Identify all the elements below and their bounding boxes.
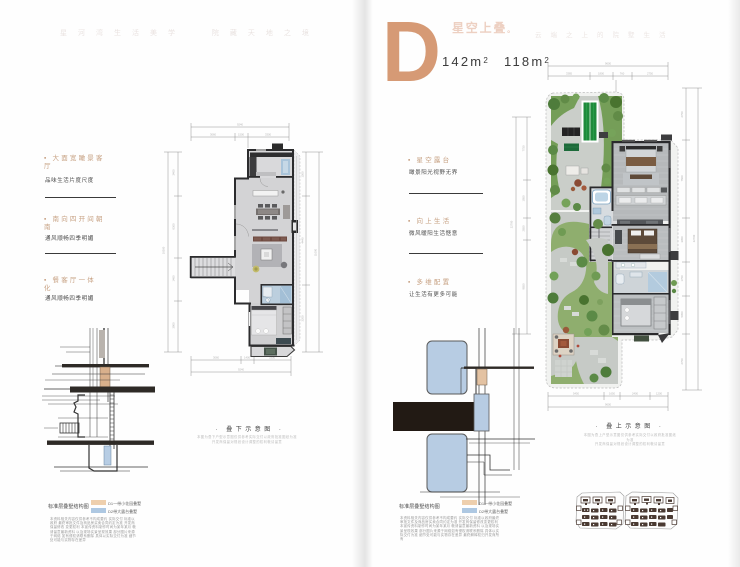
svg-text:2750: 2750 xyxy=(680,358,684,364)
svg-text:5450: 5450 xyxy=(573,392,579,396)
svg-text:1750: 1750 xyxy=(680,275,684,281)
svg-text:9240: 9240 xyxy=(238,368,244,372)
svg-text:2750: 2750 xyxy=(647,72,653,76)
svg-text:1200: 1200 xyxy=(656,392,662,396)
svg-text:9600: 9600 xyxy=(605,403,611,407)
svg-text:1500: 1500 xyxy=(301,171,305,177)
svg-text:1400: 1400 xyxy=(244,356,250,360)
svg-text:3900: 3900 xyxy=(172,322,176,328)
svg-text:3060: 3060 xyxy=(210,133,216,137)
svg-text:6300: 6300 xyxy=(172,223,176,229)
svg-text:11000: 11000 xyxy=(314,248,318,256)
svg-text:9240: 9240 xyxy=(237,123,243,127)
svg-text:3050: 3050 xyxy=(680,236,684,242)
svg-text:3200: 3200 xyxy=(301,315,305,321)
svg-text:1650: 1650 xyxy=(609,392,615,396)
svg-text:7500: 7500 xyxy=(680,175,684,181)
svg-text:9600: 9600 xyxy=(605,62,611,66)
svg-text:1800: 1800 xyxy=(598,72,604,76)
svg-text:3400: 3400 xyxy=(172,169,176,175)
svg-text:1950: 1950 xyxy=(522,195,526,201)
svg-text:760: 760 xyxy=(620,72,625,76)
svg-text:22700: 22700 xyxy=(510,220,514,228)
svg-text:2400: 2400 xyxy=(632,392,638,396)
svg-text:1460: 1460 xyxy=(172,275,176,281)
svg-text:1500: 1500 xyxy=(238,133,244,137)
svg-text:5050: 5050 xyxy=(680,311,684,317)
svg-text:7750: 7750 xyxy=(522,145,526,151)
svg-text:2850: 2850 xyxy=(522,225,526,231)
svg-text:4440: 4440 xyxy=(301,237,305,243)
svg-text:3300: 3300 xyxy=(265,133,271,137)
svg-text:22700: 22700 xyxy=(692,234,696,242)
svg-text:9850: 9850 xyxy=(522,283,526,289)
svg-text:3385: 3385 xyxy=(566,72,572,76)
svg-text:2750: 2750 xyxy=(680,111,684,117)
svg-text:3060: 3060 xyxy=(213,356,219,360)
svg-text:10300: 10300 xyxy=(162,246,166,254)
